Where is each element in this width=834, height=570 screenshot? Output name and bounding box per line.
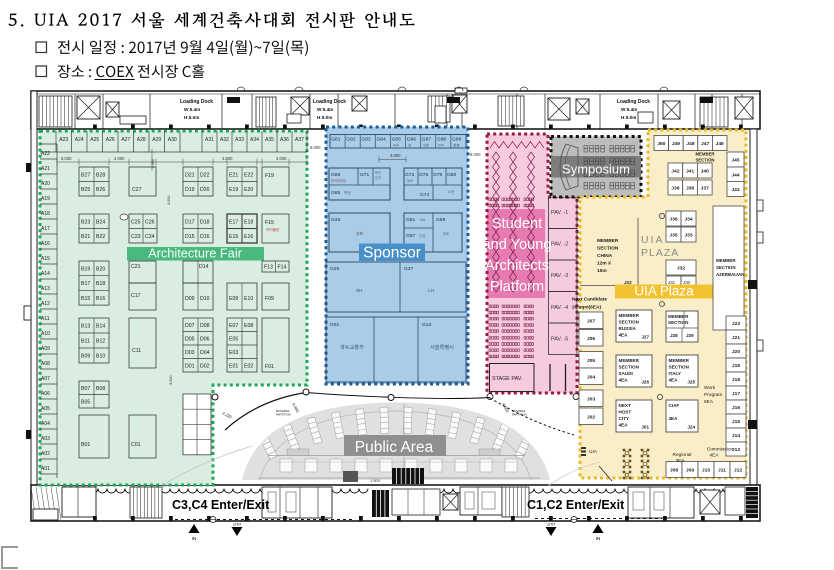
svg-text:PARTITION: PARTITION <box>276 413 291 417</box>
svg-text:SECTION: SECTION <box>716 265 736 270</box>
svg-text:NEXT: NEXT <box>619 403 631 408</box>
svg-text:G25: G25 <box>330 266 340 272</box>
svg-text:E21: E21 <box>229 172 238 178</box>
svg-text:A06: A06 <box>41 391 50 397</box>
svg-text:E09: E09 <box>229 296 238 302</box>
svg-text:5.000: 5.000 <box>61 156 72 161</box>
svg-text:IN: IN <box>596 536 601 541</box>
svg-text:G71: G71 <box>360 172 370 178</box>
svg-text:G79: G79 <box>433 172 443 178</box>
svg-text:J36: J36 <box>669 217 677 223</box>
svg-text:B25: B25 <box>81 187 90 193</box>
svg-text:B10: B10 <box>96 354 105 360</box>
svg-text:D02: D02 <box>200 363 210 369</box>
svg-text:J47: J47 <box>701 141 709 147</box>
svg-text:B24: B24 <box>96 219 105 225</box>
svg-text:J02: J02 <box>587 414 595 420</box>
svg-text:J28: J28 <box>670 333 678 338</box>
svg-text:and Young: and Young <box>483 237 552 253</box>
svg-text:Platform: Platform <box>490 279 544 295</box>
svg-text:MEMBER: MEMBER <box>669 358 690 363</box>
svg-text:A36: A36 <box>280 137 289 143</box>
svg-text:G59: G59 <box>436 217 446 223</box>
svg-text:A14: A14 <box>41 271 50 277</box>
svg-text:G13: G13 <box>422 322 432 328</box>
svg-text:MEMBER: MEMBER <box>695 152 715 157</box>
svg-text:AZERBAIJAN: AZERBAIJAN <box>716 272 744 277</box>
svg-text:3.000: 3.000 <box>276 156 287 161</box>
svg-text:A12: A12 <box>41 301 50 307</box>
svg-text:G57: G57 <box>406 233 416 239</box>
svg-text:Symposium: Symposium <box>562 162 630 177</box>
svg-text:J03: J03 <box>587 396 595 402</box>
svg-text:Sponsor: Sponsor <box>363 245 421 262</box>
svg-text:J50: J50 <box>657 141 665 147</box>
svg-text:A13: A13 <box>41 286 50 292</box>
svg-text:E17: E17 <box>229 219 238 225</box>
svg-text:J11: J11 <box>718 468 726 474</box>
svg-text:F15: F15 <box>265 220 274 226</box>
svg-text:D19: D19 <box>185 187 195 193</box>
svg-text:Loading Dock: Loading Dock <box>617 99 650 105</box>
svg-text:A27: A27 <box>121 137 130 143</box>
svg-text:B11: B11 <box>81 339 90 345</box>
svg-text:4EA: 4EA <box>709 453 719 459</box>
svg-text:J15: J15 <box>732 419 740 425</box>
svg-text:4EA: 4EA <box>619 378 629 383</box>
svg-text:4EA: 4EA <box>619 333 629 338</box>
svg-text:J18: J18 <box>732 377 740 383</box>
svg-text:3.000: 3.000 <box>390 153 401 158</box>
svg-text:Program: Program <box>704 392 722 398</box>
svg-text:B18: B18 <box>96 281 105 287</box>
svg-text:A09: A09 <box>41 346 50 352</box>
svg-text:MEMBER: MEMBER <box>597 238 619 244</box>
svg-text:A21: A21 <box>41 166 50 172</box>
svg-text:J49: J49 <box>672 141 680 147</box>
svg-text:G01: G01 <box>330 322 340 328</box>
svg-text:A05: A05 <box>41 406 50 412</box>
svg-text:A03: A03 <box>41 436 50 442</box>
svg-text:E01: E01 <box>229 363 238 369</box>
svg-text:W:5.4m: W:5.4m <box>184 107 200 112</box>
svg-text:A34: A34 <box>250 137 259 143</box>
svg-text:OUT: OUT <box>546 522 555 527</box>
svg-text:B26: B26 <box>96 187 105 193</box>
svg-text:H:5.0m: H:5.0m <box>621 115 636 120</box>
svg-text:ITALY: ITALY <box>669 371 682 376</box>
svg-text:20 sqm(6EA): 20 sqm(6EA) <box>572 305 601 311</box>
svg-text:A04: A04 <box>41 421 50 427</box>
svg-text:G86: G86 <box>407 137 417 143</box>
svg-text:A35: A35 <box>265 137 274 143</box>
svg-text:PAV. -5: PAV. -5 <box>551 337 568 343</box>
svg-text:B14: B14 <box>96 324 105 330</box>
svg-text:A19: A19 <box>41 196 50 202</box>
svg-text:W:5.4m: W:5.4m <box>317 107 333 112</box>
svg-text:J05: J05 <box>587 358 595 364</box>
svg-text:OUT: OUT <box>232 522 241 527</box>
svg-text:CHINA: CHINA <box>597 253 613 259</box>
svg-text:8EA: 8EA <box>704 399 714 405</box>
svg-text:C24: C24 <box>145 234 155 240</box>
svg-text:SECTION: SECTION <box>619 365 640 370</box>
svg-text:G85: G85 <box>392 137 402 143</box>
svg-text:G87: G87 <box>422 137 432 143</box>
svg-text:G69: G69 <box>331 172 341 178</box>
svg-text:Architecture Fair: Architecture Fair <box>148 246 243 261</box>
svg-text:C01: C01 <box>131 442 141 448</box>
svg-text:J23: J23 <box>732 321 740 327</box>
svg-text:B19: B19 <box>81 266 90 272</box>
svg-text:UIA Plaza: UIA Plaza <box>634 284 694 299</box>
svg-text:D22: D22 <box>200 172 210 178</box>
svg-text:SAUDI: SAUDI <box>619 371 633 376</box>
svg-text:E08: E08 <box>244 323 253 329</box>
svg-text:15m: 15m <box>597 268 607 274</box>
svg-text:PAV. -1: PAV. -1 <box>551 210 568 216</box>
svg-text:J34: J34 <box>684 217 692 223</box>
svg-text:J17: J17 <box>732 391 740 397</box>
svg-text:J44: J44 <box>731 173 739 179</box>
svg-text:A02: A02 <box>41 451 50 457</box>
svg-text:C21: C21 <box>131 264 141 270</box>
svg-text:4EA: 4EA <box>669 416 679 421</box>
svg-text:B23: B23 <box>81 219 90 225</box>
svg-text:B28: B28 <box>96 172 105 178</box>
svg-text:J33: J33 <box>684 233 692 239</box>
svg-text:D10: D10 <box>200 296 210 302</box>
svg-text:PLAZA: PLAZA <box>641 247 679 259</box>
svg-text:J35: J35 <box>669 233 677 239</box>
svg-text:B21: B21 <box>81 234 90 240</box>
svg-text:MEMBER: MEMBER <box>619 313 640 318</box>
svg-text:Next Candidate: Next Candidate <box>572 297 607 303</box>
svg-text:E02: E02 <box>244 363 253 369</box>
svg-text:A15: A15 <box>41 256 50 262</box>
svg-text:J19: J19 <box>732 363 740 369</box>
svg-text:A37: A37 <box>295 137 304 143</box>
svg-text:3.000: 3.000 <box>169 375 173 385</box>
svg-text:J48: J48 <box>686 141 694 147</box>
svg-text:J16: J16 <box>732 405 740 411</box>
svg-text:PAV. -4: PAV. -4 <box>551 305 568 311</box>
svg-text:Loading Dock: Loading Dock <box>180 99 213 105</box>
svg-text:RUSSIA: RUSSIA <box>619 326 637 331</box>
svg-text:DA: DA <box>420 218 426 222</box>
svg-text:A23: A23 <box>59 137 68 143</box>
svg-text:Work: Work <box>704 385 716 391</box>
svg-text:STAGE PAV.: STAGE PAV. <box>492 376 522 382</box>
svg-text:Loading Dock: Loading Dock <box>313 99 346 105</box>
svg-text:G37: G37 <box>404 266 414 272</box>
svg-text:G65: G65 <box>331 190 341 196</box>
svg-text:E16: E16 <box>244 234 253 240</box>
svg-text:C1,C2 Enter/Exit: C1,C2 Enter/Exit <box>527 498 625 512</box>
svg-text:MEMBER: MEMBER <box>716 258 736 263</box>
svg-text:E15: E15 <box>229 234 238 240</box>
svg-text:UIA: UIA <box>641 234 665 246</box>
svg-text:SECTION: SECTION <box>597 246 619 252</box>
svg-text:Public Area: Public Area <box>355 439 434 456</box>
svg-text:G80: G80 <box>447 172 457 178</box>
svg-text:H:5.0m: H:5.0m <box>184 115 199 120</box>
svg-text:B07: B07 <box>81 386 90 392</box>
svg-text:G89: G89 <box>452 137 462 143</box>
svg-text:Architects: Architects <box>485 258 549 274</box>
svg-text:C26: C26 <box>145 219 155 225</box>
svg-text:A10: A10 <box>41 331 50 337</box>
svg-text:J21: J21 <box>732 335 740 341</box>
svg-text:G49: G49 <box>331 217 341 223</box>
svg-text:F13: F13 <box>264 265 273 271</box>
svg-text:J40: J40 <box>701 169 709 175</box>
svg-text:G82: G82 <box>346 137 356 143</box>
svg-text:C11: C11 <box>132 348 141 354</box>
svg-text:A29: A29 <box>152 137 161 143</box>
svg-text:E18: E18 <box>244 219 253 225</box>
svg-text:D18: D18 <box>200 219 210 225</box>
svg-text:G76: G76 <box>419 172 429 178</box>
svg-text:J25: J25 <box>687 380 695 385</box>
svg-text:J07: J07 <box>587 318 595 324</box>
svg-text:A20: A20 <box>41 181 50 187</box>
svg-text:J10: J10 <box>702 468 710 474</box>
svg-text:J45: J45 <box>731 158 739 164</box>
svg-text:G74: G74 <box>420 192 430 198</box>
svg-text:A30: A30 <box>168 137 177 143</box>
svg-text:E22: E22 <box>244 172 253 178</box>
svg-text:A25: A25 <box>90 137 99 143</box>
svg-text:E20: E20 <box>244 187 253 193</box>
svg-text:G88: G88 <box>437 137 447 143</box>
svg-text:6.000: 6.000 <box>470 152 481 157</box>
svg-text:A18: A18 <box>41 211 50 217</box>
svg-text:1.500: 1.500 <box>370 478 381 483</box>
svg-text:J20: J20 <box>732 349 740 355</box>
svg-text:B15: B15 <box>81 296 90 302</box>
svg-text:PARTITION: PARTITION <box>512 413 527 417</box>
svg-text:G83: G83 <box>361 137 371 143</box>
svg-text:F09: F09 <box>265 296 274 302</box>
svg-text:B22: B22 <box>96 234 105 240</box>
svg-text:4EA: 4EA <box>619 423 629 428</box>
svg-text:A01: A01 <box>41 466 50 472</box>
svg-text:C23: C23 <box>131 234 141 240</box>
svg-text:A26: A26 <box>106 137 115 143</box>
svg-text:D07: D07 <box>185 323 195 329</box>
svg-text:J27: J27 <box>641 335 649 340</box>
svg-text:D17: D17 <box>185 219 195 225</box>
svg-text:H:5.0m: H:5.0m <box>317 115 332 120</box>
svg-text:LH: LH <box>428 288 434 293</box>
svg-text:B08: B08 <box>96 386 105 392</box>
svg-text:A32: A32 <box>220 137 229 143</box>
svg-text:Student: Student <box>492 216 542 232</box>
svg-text:A16: A16 <box>41 241 50 247</box>
svg-text:E05: E05 <box>229 336 238 342</box>
svg-text:J38: J38 <box>686 186 694 192</box>
svg-text:MEMBER: MEMBER <box>619 358 640 363</box>
svg-text:J08: J08 <box>670 468 678 474</box>
svg-text:J09: J09 <box>686 468 694 474</box>
svg-text:12m X: 12m X <box>597 261 612 267</box>
svg-text:SECTION: SECTION <box>619 320 640 325</box>
svg-text:C25: C25 <box>131 219 141 225</box>
svg-text:A33: A33 <box>235 137 244 143</box>
svg-text:G81: G81 <box>331 137 341 143</box>
svg-text:B20: B20 <box>96 266 105 272</box>
svg-text:D03: D03 <box>185 350 195 356</box>
svg-text:UIA: UIA <box>589 449 598 455</box>
svg-text:SECTION: SECTION <box>695 158 714 163</box>
svg-text:B12: B12 <box>96 339 105 345</box>
svg-text:B27: B27 <box>81 172 90 178</box>
svg-text:IN: IN <box>192 536 197 541</box>
svg-text:4.000: 4.000 <box>114 156 125 161</box>
svg-text:A24: A24 <box>75 137 84 143</box>
svg-text:F19: F19 <box>265 173 274 179</box>
svg-text:J37: J37 <box>701 186 709 192</box>
svg-text:J12: J12 <box>734 468 742 474</box>
svg-text:J43: J43 <box>731 187 739 193</box>
svg-text:J01: J01 <box>641 425 649 430</box>
svg-text:J32: J32 <box>677 266 685 272</box>
svg-text:J04: J04 <box>587 374 595 380</box>
svg-text:B17: B17 <box>81 281 90 287</box>
svg-text:J22: J22 <box>624 280 632 285</box>
svg-text:C17: C17 <box>131 293 141 299</box>
svg-text:A08: A08 <box>41 361 50 367</box>
svg-text:E19: E19 <box>229 187 238 193</box>
svg-text:G84: G84 <box>377 137 387 143</box>
svg-text:J39: J39 <box>671 186 679 192</box>
svg-text:A07: A07 <box>41 376 50 382</box>
svg-text:B05: B05 <box>81 399 90 405</box>
svg-text:6.000: 6.000 <box>310 145 321 150</box>
svg-text:C3,C4 Enter/Exit: C3,C4 Enter/Exit <box>172 498 270 512</box>
svg-text:SECTION: SECTION <box>669 365 690 370</box>
svg-text:E03: E03 <box>229 350 238 356</box>
svg-text:J42: J42 <box>671 169 679 175</box>
svg-text:PAV. -3: PAV. -3 <box>551 273 568 279</box>
svg-text:W:5.4m: W:5.4m <box>621 107 637 112</box>
svg-text:Regional: Regional <box>673 452 692 458</box>
svg-text:J06: J06 <box>587 336 595 342</box>
svg-text:J29: J29 <box>686 333 694 338</box>
svg-text:Commission: Commission <box>707 447 734 453</box>
svg-text:3.000: 3.000 <box>167 195 171 205</box>
svg-text:CITY: CITY <box>619 416 629 421</box>
svg-text:3.000: 3.000 <box>222 156 233 161</box>
svg-text:D05: D05 <box>185 336 195 342</box>
svg-text:E07: E07 <box>229 323 238 329</box>
svg-text:B09: B09 <box>81 354 90 360</box>
svg-text:F01: F01 <box>265 364 274 370</box>
svg-text:MEMBER: MEMBER <box>668 314 689 319</box>
svg-text:J46: J46 <box>716 141 724 147</box>
svg-text:D09: D09 <box>185 296 195 302</box>
svg-text:HOST: HOST <box>619 410 632 415</box>
svg-text:3EA: 3EA <box>675 458 685 464</box>
svg-text:CIAF: CIAF <box>669 403 680 408</box>
svg-text:G61: G61 <box>406 217 416 223</box>
svg-text:A11: A11 <box>41 316 50 322</box>
svg-text:D14: D14 <box>199 264 209 270</box>
svg-text:A17: A17 <box>41 226 50 232</box>
svg-text:4EA: 4EA <box>669 378 679 383</box>
svg-text:B01: B01 <box>81 442 90 448</box>
svg-text:A22: A22 <box>41 151 50 157</box>
svg-text:D20: D20 <box>200 187 210 193</box>
svg-text:D01: D01 <box>185 363 195 369</box>
svg-text:A31: A31 <box>205 137 214 143</box>
svg-text:E10: E10 <box>244 296 253 302</box>
svg-text:J41: J41 <box>686 169 694 175</box>
svg-text:A28: A28 <box>137 137 146 143</box>
svg-text:J24: J24 <box>687 425 695 430</box>
svg-text:C27: C27 <box>132 187 142 193</box>
svg-text:PAV. -2: PAV. -2 <box>551 242 568 248</box>
svg-text:D04: D04 <box>200 350 210 356</box>
svg-text:D21: D21 <box>185 172 195 178</box>
svg-text:G73: G73 <box>405 172 415 178</box>
svg-text:J26: J26 <box>641 380 649 385</box>
svg-text:F14: F14 <box>278 265 287 271</box>
svg-text:D06: D06 <box>200 336 210 342</box>
svg-text:J14: J14 <box>732 433 740 439</box>
svg-text:D15: D15 <box>185 234 195 240</box>
svg-text:B13: B13 <box>81 324 90 330</box>
svg-text:SH: SH <box>356 288 362 293</box>
svg-text:B16: B16 <box>96 296 105 302</box>
svg-text:SECTION: SECTION <box>668 320 689 325</box>
svg-text:D16: D16 <box>200 234 210 240</box>
svg-text:D08: D08 <box>200 323 210 329</box>
